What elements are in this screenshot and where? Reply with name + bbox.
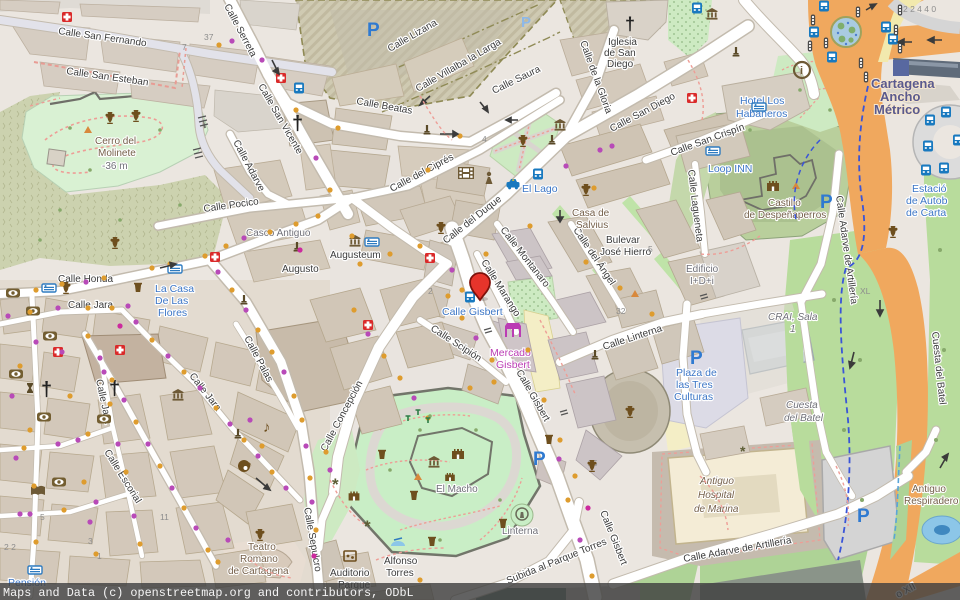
svg-text:Respiradero: Respiradero [904,496,959,507]
svg-text:Castillo: Castillo [768,198,801,209]
svg-text:†: † [292,113,303,135]
svg-text:4: 4 [482,134,487,144]
svg-text:P: P [690,348,703,369]
svg-text:Linterna: Linterna [502,526,539,537]
svg-text:CRAI, Sala: CRAI, Sala [768,312,818,323]
svg-text:de Carta: de Carta [906,207,946,219]
svg-text:3: 3 [88,536,93,546]
svg-text:-36 m: -36 m [102,161,128,172]
svg-text:Augusto: Augusto [282,264,319,275]
svg-text:♪: ♪ [247,460,252,471]
svg-text:I+D+i: I+D+i [690,276,714,287]
svg-text:†: † [41,379,52,401]
svg-text:1: 1 [790,324,796,335]
svg-text:2 2 4 4 0: 2 2 4 4 0 [903,4,936,14]
svg-text:5: 5 [648,244,653,254]
svg-text:Calle Gisbert: Calle Gisbert [442,306,503,318]
svg-text:Edificio: Edificio [686,264,719,275]
svg-text:7: 7 [182,42,187,52]
svg-text:Auditorio: Auditorio [330,568,370,579]
svg-text:37: 37 [204,32,214,42]
svg-text:Estació: Estació [912,183,947,195]
svg-text:El Lago: El Lago [522,183,558,195]
svg-text:del Batel: del Batel [784,413,824,424]
svg-text:Molinete: Molinete [98,148,136,159]
svg-text:XL: XL [860,286,871,296]
svg-text:i: i [800,65,803,77]
svg-text:de Cartagena: de Cartagena [228,566,289,577]
svg-text:de San: de San [604,48,636,59]
svg-text:El Macho: El Macho [436,484,478,495]
svg-text:Teatro: Teatro [248,542,276,553]
svg-text:Calle Jara: Calle Jara [68,300,113,311]
svg-text:De Las: De Las [155,295,188,307]
svg-text:Loop INN: Loop INN [708,163,752,175]
svg-text:Augusteum: Augusteum [330,250,381,261]
svg-text:†: † [625,14,635,34]
svg-text:Salvius: Salvius [576,220,608,231]
svg-text:P: P [857,506,870,527]
svg-text:Cuesta: Cuesta [786,400,818,411]
svg-text:Gisbert: Gisbert [496,359,530,371]
svg-text:Flores: Flores [158,307,187,319]
svg-text:de Marina: de Marina [694,504,739,515]
svg-text:P: P [820,192,833,213]
svg-text:2 2: 2 2 [4,542,16,552]
svg-text:de Autob: de Autob [906,195,948,207]
svg-text:La Casa: La Casa [155,283,194,295]
svg-text:*: * [364,517,371,536]
svg-text:♪: ♪ [263,419,271,436]
svg-text:P: P [367,20,380,41]
svg-text:32: 32 [616,306,626,316]
svg-text:Bulevar: Bulevar [606,235,641,246]
svg-text:Antiguo: Antiguo [912,484,946,495]
svg-text:Diego: Diego [607,59,634,70]
svg-text:Mercado: Mercado [490,347,531,359]
svg-text:2: 2 [428,286,433,296]
svg-text:Casco Antiguo: Casco Antiguo [246,228,311,239]
svg-text:Alfonso: Alfonso [384,556,418,567]
svg-text:Torres: Torres [386,568,414,579]
svg-text:Métrico: Métrico [874,102,920,117]
svg-text:José Hierro: José Hierro [600,247,652,258]
svg-text:*: * [740,443,746,459]
svg-text:Iglesia: Iglesia [608,37,637,48]
svg-text:las Tres: las Tres [676,379,713,391]
svg-text:de Despeñaperros: de Despeñaperros [744,210,826,221]
svg-text:Maps and Data (c) openstreetma: Maps and Data (c) openstreetmap.org and … [3,586,414,600]
svg-text:Casa de: Casa de [572,208,610,219]
svg-text:5: 5 [40,512,45,522]
svg-text:11: 11 [160,512,169,522]
svg-text:Romano: Romano [240,554,278,565]
svg-text:Cerro del: Cerro del [95,136,136,147]
svg-text:Culturas: Culturas [674,391,713,403]
svg-text:P: P [533,449,546,470]
svg-text:P: P [521,14,531,31]
